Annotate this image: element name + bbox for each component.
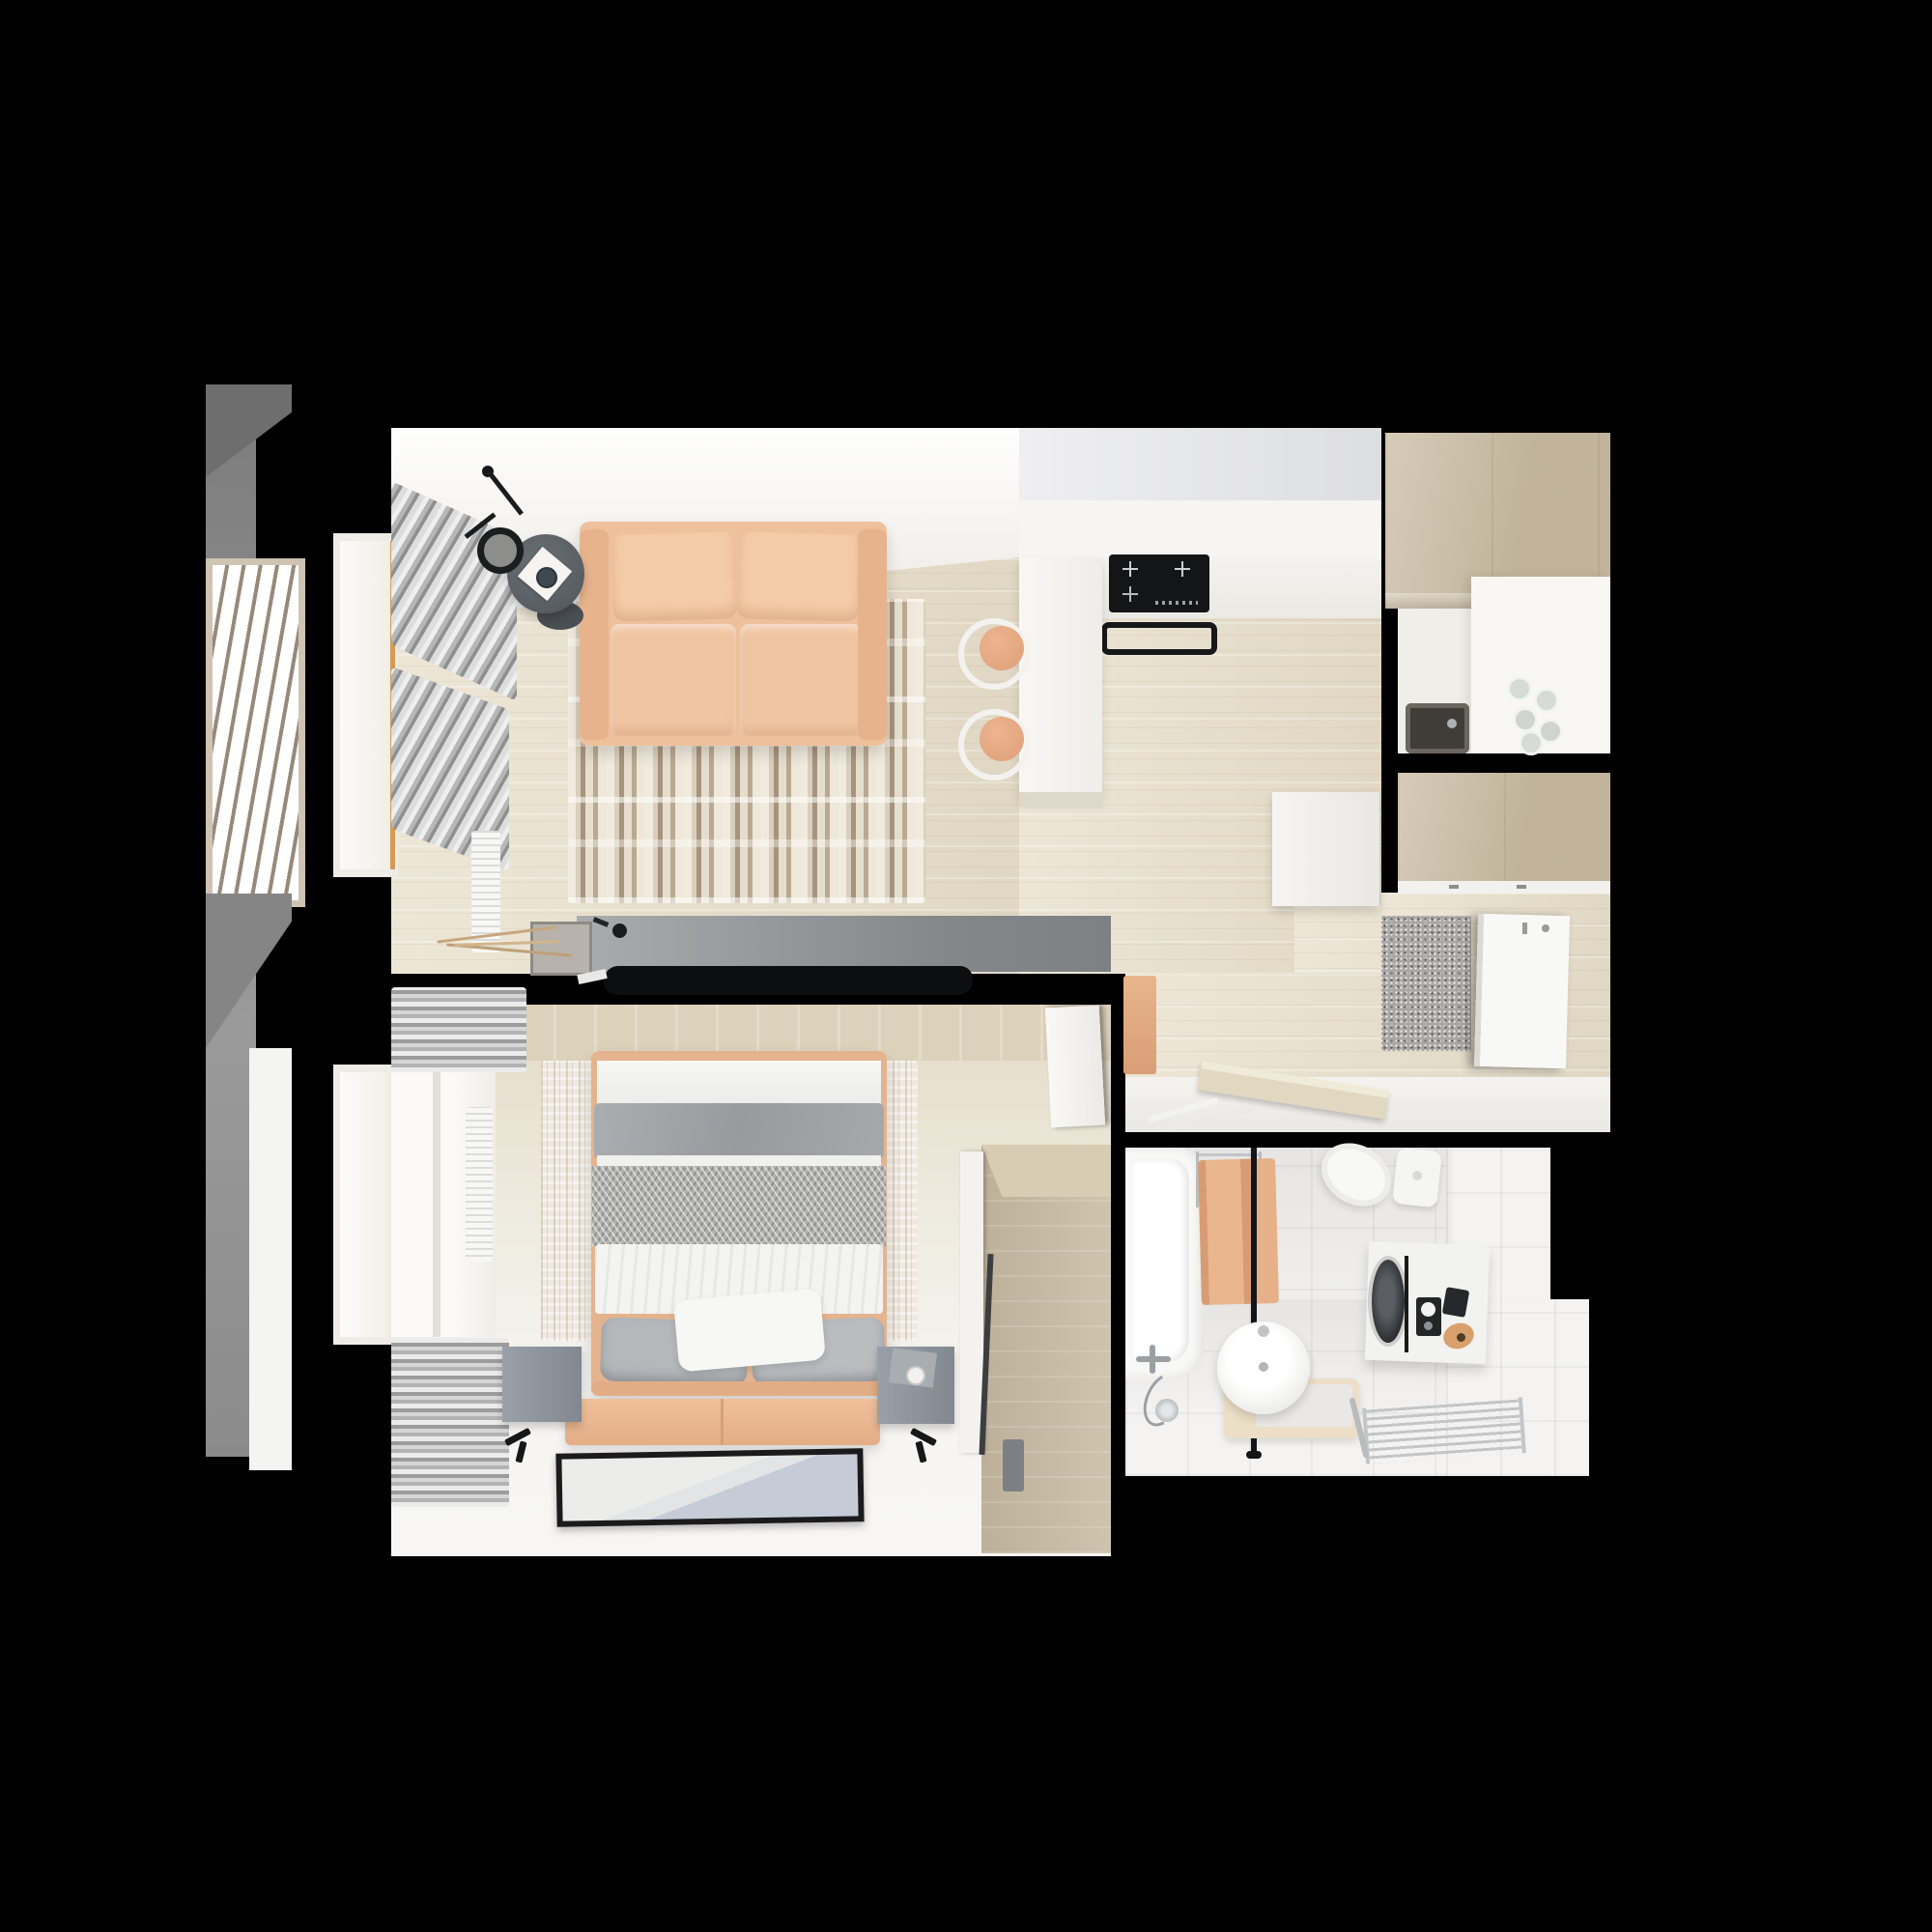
bedroom-blind-lower (391, 1338, 509, 1507)
washer-knob (1421, 1302, 1435, 1317)
washbasin-drain (1259, 1362, 1268, 1372)
bedroom-window-glass (340, 1072, 388, 1337)
floor-lamp-shade (477, 527, 524, 574)
cooktop-burner-cross-2 (1181, 561, 1183, 577)
washer-drum (1368, 1256, 1408, 1347)
bath-towel-peach (1198, 1158, 1279, 1305)
kitchen-counter-apron (1019, 500, 1381, 557)
nightstand-right-knob (906, 1366, 925, 1385)
bedroom-window-mullion (433, 1072, 440, 1337)
bar-chair-2-seat (980, 717, 1024, 761)
hall-wardrobe (1398, 773, 1610, 881)
entrance-door (1474, 914, 1570, 1068)
sofa-armrest-left (580, 529, 609, 740)
sofa-seat-cushion-left (611, 624, 736, 736)
bed-foot-bench-seam (721, 1399, 724, 1445)
tv-flat (603, 966, 974, 995)
oven-front (1101, 622, 1217, 655)
balcony-white-strip (249, 1048, 292, 1470)
picture-frame (555, 1448, 864, 1527)
bedroom-door-open (1045, 1006, 1105, 1128)
sofa-seat-cushion-right (740, 624, 862, 736)
shower-mixer-cross (1150, 1345, 1155, 1374)
door-hook-2 (1542, 924, 1549, 932)
glass-1 (1507, 676, 1532, 701)
floor-plan-render (0, 0, 1932, 1932)
sofa-back-cushion-left (611, 531, 737, 621)
hall-wardrobe-front (1398, 881, 1610, 894)
sideboard-vase (612, 923, 627, 938)
bedroom-wardrobe (981, 1145, 1111, 1553)
tv-sideboard (577, 916, 1111, 972)
toiletry-box-black (1442, 1287, 1469, 1318)
cooktop-control-strip (1155, 601, 1198, 605)
towel-ladder (1362, 1397, 1526, 1463)
washer-door-seam (1405, 1256, 1408, 1352)
washbasin-faucet (1258, 1325, 1269, 1337)
glass-2 (1534, 688, 1559, 713)
toiletry-jar-opening (1457, 1333, 1465, 1342)
glass-3 (1513, 707, 1538, 732)
glass-5 (1519, 730, 1544, 755)
toilet-flush-button (1412, 1171, 1422, 1180)
hall-shoe-cabinet (1272, 792, 1379, 906)
door-hook-1 (1522, 923, 1527, 934)
bedroom-blind-upper (391, 987, 526, 1072)
kitchen-sink (1406, 703, 1469, 753)
kitchen-faucet (1447, 719, 1457, 728)
bed-herringbone-throw (592, 1166, 886, 1246)
nightstand-left (502, 1347, 582, 1422)
cooktop-burner-cross-3 (1129, 586, 1131, 602)
sofa-armrest-right (858, 529, 887, 740)
hall-wardrobe-handle-2 (1517, 885, 1526, 889)
living-window-glass (340, 541, 388, 869)
doormat (1381, 916, 1471, 1051)
bed-duvet-grey (594, 1103, 884, 1159)
bar-counter (1019, 557, 1102, 799)
bedroom-tv-bracket (1003, 1439, 1024, 1492)
bar-chair-1-seat (980, 626, 1024, 670)
washer-dial (1424, 1321, 1433, 1330)
sofa-back-cushion-right (737, 531, 861, 621)
bed-bolster (591, 1381, 887, 1396)
bedroom-radiator (466, 1107, 493, 1262)
shower-rail-foot (1246, 1451, 1262, 1459)
kitchen-counter-top-band (1019, 428, 1381, 500)
pillow-white-center (673, 1289, 826, 1373)
hall-wardrobe-handle-1 (1449, 885, 1459, 889)
bedroom-wardrobe-top-face (981, 1145, 1111, 1197)
cooktop-burner-cross-1 (1129, 561, 1131, 577)
bar-counter-edge (1019, 792, 1102, 808)
bathtub-rim (1133, 1159, 1189, 1362)
hall-bench (1123, 976, 1156, 1074)
coffee-table-cup (536, 567, 557, 588)
balcony-louvered-screen (206, 558, 305, 907)
bed-sheet-top (597, 1061, 881, 1109)
bedroom-wardrobe-door (960, 1151, 983, 1453)
